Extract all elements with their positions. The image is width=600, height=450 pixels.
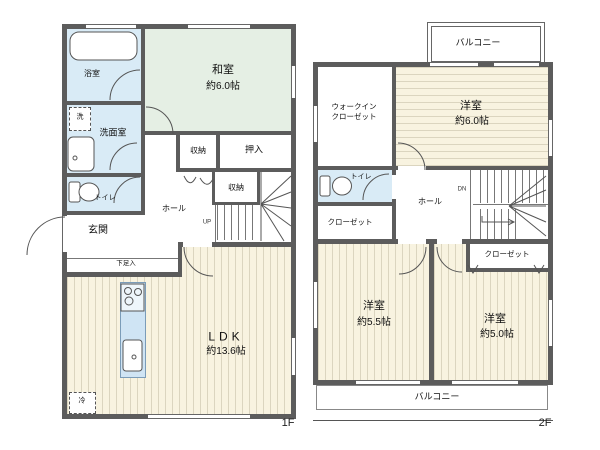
- label-hall-1f: ホール: [162, 204, 186, 214]
- label-washitsu-size: 約6.0帖: [206, 81, 240, 94]
- bathtub-icon: [70, 32, 137, 60]
- label-wic-line1: ウォークイン: [332, 102, 377, 112]
- floor-plan: 浴室 和室 約6.0帖 洗 洗面室 トイレ 玄関 下足入 ホール UP 収納 押…: [0, 0, 600, 450]
- label-wic: ウォークイン クローゼット: [332, 102, 377, 122]
- washbasin-icon: [68, 137, 94, 171]
- label-washroom: 洗面室: [99, 127, 126, 138]
- label-closet-right: クローゼット: [485, 249, 530, 258]
- label-room50-size: 約5.0帖: [480, 329, 514, 342]
- stair-fan-1f: [261, 172, 291, 241]
- label-hall-2f: ホール: [418, 197, 442, 207]
- stair-arrow-2f: [482, 216, 514, 225]
- door-arc-entrance: [27, 217, 65, 255]
- label-laundry: 洗: [77, 114, 84, 123]
- door-arc-ldk: [184, 247, 213, 276]
- bifold-mark: [200, 178, 213, 184]
- stove-icon: [121, 284, 144, 311]
- door-arc-yoshitsu55: [399, 247, 426, 274]
- label-balcony-top: バルコニー: [456, 37, 501, 48]
- bifold-mark: [468, 265, 544, 273]
- toilet-bowl-2f: [333, 177, 352, 195]
- label-oshiire: 押入: [245, 144, 263, 155]
- label-storage-b: 収納: [228, 183, 244, 193]
- label-ldk-name: LDK: [208, 330, 243, 345]
- door-arc-washroom: [110, 143, 137, 170]
- bifold-mark: [184, 176, 196, 183]
- label-shoe-storage: 下足入: [116, 260, 136, 268]
- stair-fan-2f: [509, 176, 546, 236]
- label-ldk-size: 約13.6帖: [206, 346, 245, 359]
- label-room50-name: 洋室: [484, 313, 506, 327]
- label-washitsu-name: 和室: [212, 64, 234, 78]
- door-arc-washitsu: [146, 107, 173, 134]
- label-toilet-1f: トイレ: [95, 195, 116, 204]
- label-bath-1f: 浴室: [84, 69, 100, 79]
- label-room55-size: 約5.5帖: [357, 317, 391, 330]
- label-toilet-2f: トイレ: [351, 174, 372, 183]
- label-genkan: 玄関: [88, 225, 108, 238]
- label-room6-size: 約6.0帖: [455, 116, 489, 129]
- door-arc-yoshitsu50: [437, 247, 462, 272]
- label-storage-a: 収納: [190, 146, 206, 156]
- label-floor-1f: 1F: [282, 417, 295, 431]
- label-closet-left: クローゼット: [328, 217, 373, 226]
- door-arc-bath: [110, 70, 140, 100]
- washbasin-drain: [73, 156, 77, 160]
- door-arc-yoshitsu6: [398, 143, 425, 170]
- label-stairs-up: UP: [203, 219, 211, 227]
- door-arc-toilet-1f: [114, 177, 140, 203]
- label-wic-line2: クローゼット: [332, 112, 377, 122]
- toilet-icon-1f: [69, 182, 80, 202]
- label-room6-name: 洋室: [460, 100, 482, 114]
- label-floor-2f: 2F: [539, 417, 552, 431]
- label-room55-name: 洋室: [363, 300, 385, 314]
- toilet-icon-2f: [320, 176, 330, 196]
- label-fridge: 冷: [79, 398, 86, 407]
- label-balcony-bottom: バルコニー: [415, 391, 460, 402]
- label-stairs-dn: DN: [458, 186, 467, 194]
